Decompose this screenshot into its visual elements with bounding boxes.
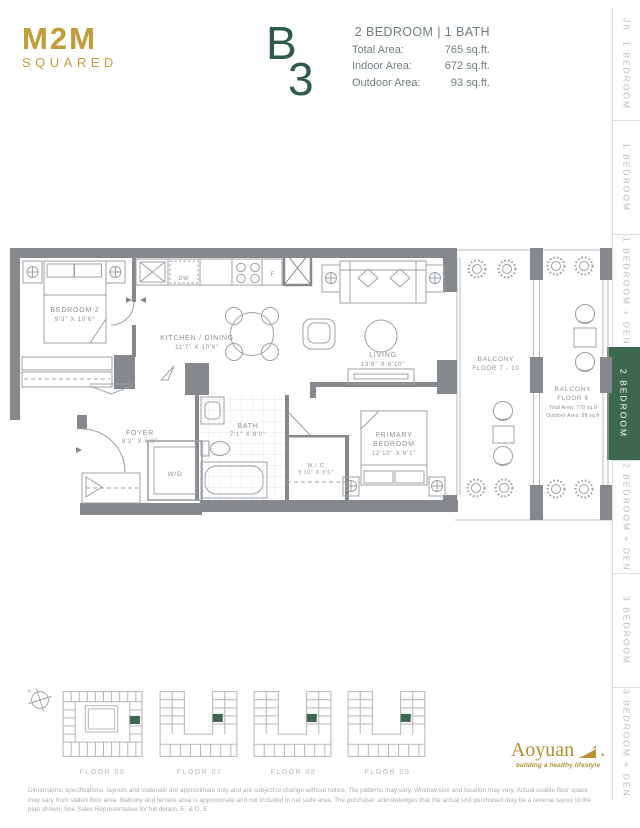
unit-type: 2 BEDROOM | 1 BATH <box>352 25 490 39</box>
keyplan-floor-06 <box>55 687 150 763</box>
fridge-label: F <box>271 272 275 278</box>
primary-label-2: BEDROOM <box>373 441 415 448</box>
balcony-mid-label: BALCONY <box>478 356 515 363</box>
unit-model-number: 3 <box>288 52 314 106</box>
balcony-right-outdoor-area: Outdoor Area: 98 sq.ft <box>546 413 600 419</box>
foyer-label: FOYER <box>126 430 154 437</box>
living-label: LIVING <box>369 352 397 359</box>
keyplan-label-floor-07: FLOOR 07 <box>152 769 247 776</box>
tab-1-bedroom-den[interactable]: 1 BEDROOM + DEN <box>613 234 640 347</box>
bath-dims: 7'1" X 8'0" <box>230 432 266 438</box>
keyplan-label-floor-09: FLOOR 09 <box>340 769 435 776</box>
keyplan-floor-08 <box>246 687 341 763</box>
living-dims: 13'6" X 9'10" <box>361 362 405 368</box>
keyplan-floor-09 <box>340 687 435 763</box>
outdoor-area-label: Outdoor Area: <box>352 77 421 89</box>
wic-dims: 5'10" X 3'6" <box>298 470 333 476</box>
floorplan-page: M2M SQUARED B 3 2 BEDROOM | 1 BATH Total… <box>0 0 640 828</box>
tab-3-bedroom-den[interactable]: 3 BEDROOM + DEN <box>613 687 640 800</box>
tab-1-bedroom[interactable]: 1 BEDROOM <box>613 120 640 233</box>
bedroom2-dims: 9'3" X 10'6" <box>55 317 95 323</box>
balcony-right-floors: FLOOR 6 <box>557 396 588 402</box>
m2m-logo: M2M SQUARED <box>22 24 118 70</box>
tab-2-bedroom-den[interactable]: 2 BEDROOM + DEN <box>613 460 640 573</box>
aoyuan-swoosh-icon <box>576 743 598 760</box>
aoyuan-period: . <box>600 740 605 760</box>
outdoor-area-value: 93 sq.ft. <box>451 77 490 89</box>
aoyuan-tagline: building a healthy lifestyle <box>502 762 614 769</box>
bath-label: BATH <box>237 423 258 430</box>
kitchen-fixtures <box>136 251 311 380</box>
total-area-value: 765 sq.ft. <box>445 44 490 56</box>
keyplan-floor-07 <box>152 687 247 763</box>
balcony-right-total-area: Total Area: 770 sq.ft <box>549 405 598 411</box>
bedroom2-label: BEDROOM 2 <box>50 307 99 314</box>
tab-3-bedroom[interactable]: 3 BEDROOM <box>613 573 640 686</box>
aoyuan-brand-name: Aoyuan <box>511 740 574 760</box>
balcony-right-furniture <box>548 258 597 498</box>
tab-jr-1-bedroom[interactable]: JR. 1 BEDROOM <box>613 8 640 120</box>
total-area-label: Total Area: <box>352 44 404 56</box>
outdoor-area-row: Outdoor Area: 93 sq.ft. <box>352 77 490 89</box>
m2m-logo-subtext: SQUARED <box>22 55 118 70</box>
unit-floorplan: BEDROOM 2 9'3" X 10'6" KITCHEN / DINING … <box>10 245 612 525</box>
wic-label: W.I.C <box>307 463 324 469</box>
balcony-mid-floors: FLOOR 7 - 10 <box>472 366 519 372</box>
total-area-row: Total Area: 765 sq.ft. <box>352 44 490 56</box>
disclaimer-text: Dimensions, specifications, layouts and … <box>28 786 594 815</box>
dishwasher-label: DW <box>179 276 190 282</box>
indoor-area-label: Indoor Area: <box>352 60 412 72</box>
compass-icon: N <box>26 686 54 714</box>
keyplan-label-floor-06: FLOOR 06 <box>55 769 150 776</box>
indoor-area-row: Indoor Area: 672 sq.ft. <box>352 60 490 72</box>
wd-label: W/D <box>167 471 182 478</box>
primary-dims: 12'10" X 9'1" <box>372 451 416 457</box>
primary-label-1: PRIMARY <box>375 432 412 439</box>
indoor-area-value: 672 sq.ft. <box>445 60 490 72</box>
balcony-right-label: BALCONY <box>555 386 592 393</box>
m2m-logo-text: M2M <box>22 24 118 54</box>
aoyuan-logo: Aoyuan . building a healthy lifestyle <box>502 740 614 769</box>
unit-type-sidebar: JR. 1 BEDROOM 1 BEDROOM 1 BEDROOM + DEN … <box>612 8 640 800</box>
kitchen-dims: 11'7" X 10'9" <box>175 345 219 351</box>
unit-info-block: 2 BEDROOM | 1 BATH Total Area: 765 sq.ft… <box>352 25 490 89</box>
bath-tile-floor <box>199 395 285 500</box>
keyplan-label-floor-08: FLOOR 08 <box>246 769 341 776</box>
foyer-dims: 8'2" X 6'0" <box>122 439 158 445</box>
compass-north-label: N <box>28 689 31 694</box>
balcony-mid-furniture <box>468 261 516 497</box>
kitchen-label: KITCHEN / DINING <box>160 335 234 342</box>
